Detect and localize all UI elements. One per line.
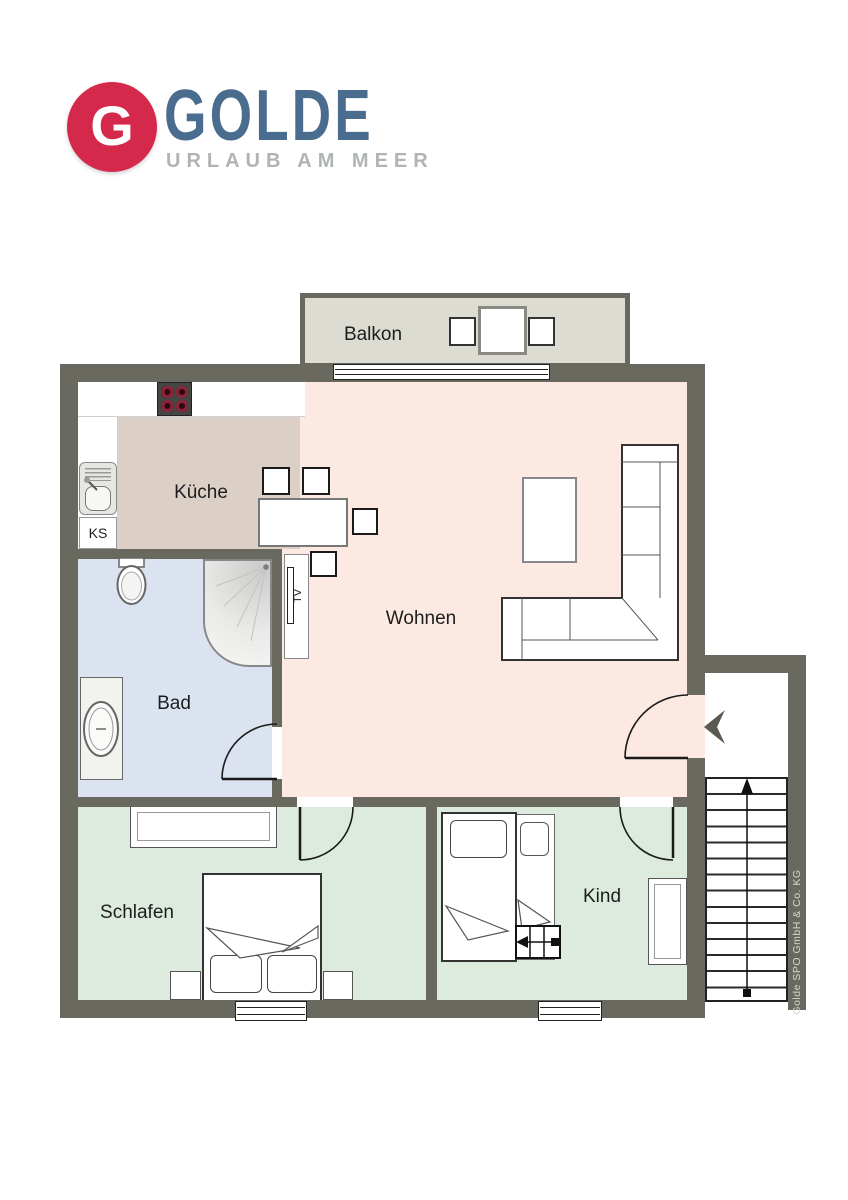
sink-drainer bbox=[85, 468, 111, 481]
dining-chair bbox=[352, 508, 378, 535]
sink-basin bbox=[85, 486, 111, 511]
staircase bbox=[705, 777, 788, 1002]
wardrobe bbox=[648, 878, 687, 965]
floorplan-page: G GOLDE URLAUB AM MEER Golde SPO GmbH & … bbox=[0, 0, 848, 1200]
wall-kueche-bad bbox=[78, 549, 282, 559]
nightstand bbox=[170, 971, 201, 1000]
label-tv: TV bbox=[292, 589, 304, 603]
dining-chair bbox=[310, 551, 337, 577]
wall-right-lower bbox=[687, 758, 705, 1018]
pillow bbox=[520, 822, 549, 856]
pillow bbox=[210, 955, 262, 993]
wall-right-upper bbox=[687, 364, 705, 695]
logo-badge: G bbox=[67, 82, 157, 172]
wall-bottom bbox=[60, 1000, 705, 1018]
wardrobe-door-line bbox=[654, 884, 681, 959]
balcony-door-window bbox=[333, 364, 550, 380]
burner-icon bbox=[176, 400, 189, 412]
bathroom-vanity bbox=[80, 677, 123, 780]
wall-schlafen-kind bbox=[426, 807, 437, 1000]
nightstand bbox=[323, 971, 353, 1000]
room-wohnen bbox=[282, 382, 687, 797]
dining-chair bbox=[302, 467, 330, 495]
credit-text: Golde SPO GmbH & Co. KG bbox=[791, 869, 803, 1014]
wardrobe bbox=[130, 805, 277, 848]
logo-initial: G bbox=[90, 98, 134, 157]
logo-brand-text: GOLDE bbox=[164, 80, 374, 152]
wall-rooms-a bbox=[78, 797, 297, 807]
label-wohnen: Wohnen bbox=[386, 608, 456, 630]
kitchen-sink-unit bbox=[79, 462, 117, 515]
wall-rooms-c bbox=[673, 797, 687, 807]
burner-icon bbox=[176, 386, 189, 398]
burner-icon bbox=[161, 400, 174, 412]
wall-rooms-b bbox=[353, 797, 620, 807]
pillow bbox=[267, 955, 317, 993]
balcony-chair-right bbox=[528, 317, 555, 346]
label-kueche: Küche bbox=[174, 482, 228, 504]
label-balkon: Balkon bbox=[344, 324, 402, 346]
wardrobe-door-line bbox=[137, 812, 270, 841]
label-schlafen: Schlafen bbox=[100, 902, 174, 924]
wall-left bbox=[60, 364, 78, 1018]
label-bad: Bad bbox=[157, 693, 191, 715]
burner-icon bbox=[161, 386, 174, 398]
entrance-arrow-icon bbox=[704, 710, 725, 744]
entrance-door-gap bbox=[687, 695, 705, 758]
shower bbox=[203, 559, 272, 667]
logo-tagline-text: URLAUB AM MEER bbox=[166, 151, 434, 171]
dining-table bbox=[258, 498, 348, 547]
wall-bad-wohnen-a bbox=[272, 549, 282, 727]
coffee-table bbox=[522, 477, 577, 563]
pillow bbox=[450, 820, 507, 858]
stove bbox=[157, 382, 192, 416]
kind-window bbox=[538, 1001, 602, 1021]
schlafen-window bbox=[235, 1001, 307, 1021]
balcony-table bbox=[478, 306, 527, 355]
balcony-chair-left bbox=[449, 317, 476, 346]
dining-chair bbox=[262, 467, 290, 495]
label-fridge: KS bbox=[89, 525, 108, 541]
label-kind: Kind bbox=[583, 886, 621, 908]
